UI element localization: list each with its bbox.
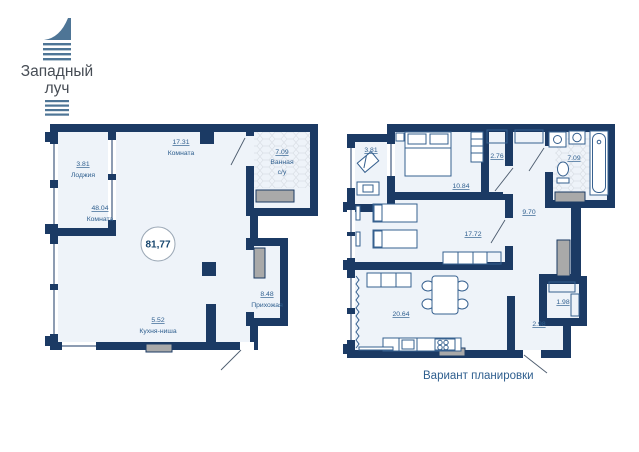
room-name: Ванная [270, 159, 294, 166]
loggia-bottom-wall [50, 228, 116, 236]
logo-lines-icon [45, 100, 69, 116]
kitchen-counter-icon [383, 338, 461, 351]
wall-stub [200, 124, 214, 144]
facade-pier [343, 344, 347, 354]
room-name: Кухня-ниша [139, 328, 176, 335]
dresser-icon [357, 182, 379, 195]
shelf-icon [356, 206, 360, 220]
area-value: 7.09 [567, 155, 580, 162]
sink-icon [569, 131, 585, 144]
shelf-icon [356, 232, 360, 246]
shaft [254, 248, 265, 278]
area-value: 10.84 [452, 183, 469, 190]
kitchen-wall-stub [206, 304, 216, 344]
double-bed-icon [405, 132, 451, 176]
room-name: Лоджия [71, 172, 95, 179]
area-value: 2.76 [490, 153, 503, 160]
floorplan-base: 3.81 Лоджия 17.31 Комната 7.09 Ванная с/… [44, 118, 329, 374]
entrance-opening [240, 342, 254, 352]
shaft [555, 192, 585, 202]
area-value: 3.81 [76, 161, 89, 168]
area-value: 8.48 [260, 291, 273, 298]
area-value: 17.31 [172, 139, 189, 146]
total-area-value: 81,77 [145, 240, 170, 251]
tv-icon [359, 347, 393, 350]
floorplan-variant: 3.81 10.84 2.76 7.09 9.70 17.72 1.98 20.… [343, 118, 633, 376]
room-door-opening [503, 218, 515, 246]
bedroom-door-opening [503, 166, 515, 194]
area-value: 1.98 [556, 299, 569, 306]
shaft [256, 190, 294, 202]
brand-name-line2: луч [45, 80, 70, 97]
sofa-icon [367, 273, 411, 287]
area-value: 3.81 [364, 147, 377, 154]
corridor-hall-opening [517, 264, 539, 284]
single-bed-icon [373, 230, 417, 248]
shaft [557, 240, 570, 276]
area-value: 48.04 [91, 205, 108, 212]
washing-machine-icon [549, 132, 566, 147]
outer-wall [571, 204, 581, 282]
room-name: Комната [87, 216, 114, 223]
western-ray-logo-icon [43, 18, 71, 60]
room-name: Комната [168, 150, 195, 157]
area-value: 9.70 [522, 209, 535, 216]
facade-pier [343, 202, 347, 212]
room-name: Прихожая [251, 302, 283, 309]
bathtub-icon [590, 131, 608, 195]
stove-icon [435, 339, 455, 350]
facade-pier [45, 224, 50, 234]
bathroom-door-opening [543, 146, 555, 172]
wall-stub [202, 262, 216, 276]
logo-sail-icon [44, 18, 71, 40]
brand-name-line1: Западный [21, 63, 93, 80]
brand-logo: Западный луч [16, 12, 136, 116]
entrance-door-swing [221, 350, 241, 370]
shelf-ladder-icon [471, 132, 483, 162]
area-value: 5.52 [151, 317, 164, 324]
area-value: 7.09 [275, 149, 288, 156]
facade-pier [45, 336, 50, 346]
variant-caption: Вариант планировки [423, 370, 534, 382]
area-value: 17.72 [464, 231, 481, 238]
nightstand-icon [396, 133, 404, 141]
cabinet-icon [443, 252, 487, 264]
toilet-icon [557, 162, 569, 183]
area-value: 20.64 [392, 311, 409, 318]
living-hall-opening [505, 270, 517, 296]
area-value: 2.98 [532, 321, 545, 328]
facade-pier [45, 132, 50, 142]
room-name: с/у [278, 169, 287, 176]
single-bed-icon [373, 204, 417, 222]
facade-pier [343, 260, 347, 270]
shaft [146, 344, 172, 352]
